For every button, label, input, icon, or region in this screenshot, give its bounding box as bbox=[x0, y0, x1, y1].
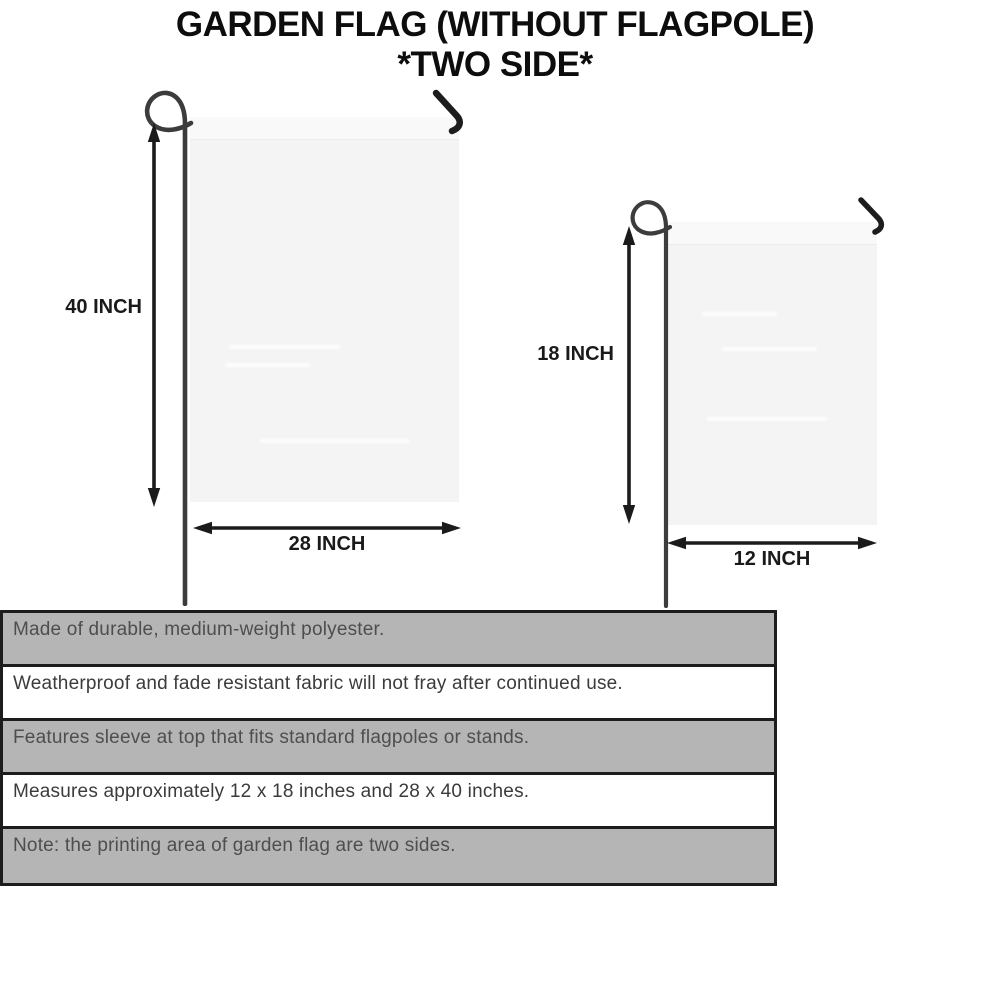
fabric-crease bbox=[707, 417, 827, 421]
feature-table: Made of durable, medium-weight polyester… bbox=[0, 610, 777, 886]
fabric-crease bbox=[230, 345, 340, 349]
feature-row: Weatherproof and fade resistant fabric w… bbox=[3, 667, 774, 721]
small-flag-width-label: 12 INCH bbox=[666, 548, 878, 571]
page-subtitle: *TWO SIDE* bbox=[0, 45, 990, 85]
page-title: GARDEN FLAG (WITHOUT FLAGPOLE) bbox=[0, 5, 990, 45]
small-flag-height-label: 18 INCH bbox=[524, 343, 614, 366]
large-flag-sleeve bbox=[190, 117, 459, 140]
large-flag-hook-icon bbox=[431, 89, 465, 135]
large-flag-width-label: 28 INCH bbox=[192, 533, 462, 556]
fabric-crease bbox=[722, 347, 817, 351]
feature-row: Features sleeve at top that fits standar… bbox=[3, 721, 774, 775]
feature-row: Measures approximately 12 x 18 inches an… bbox=[3, 775, 774, 829]
product-diagram-page: GARDEN FLAG (WITHOUT FLAGPOLE) *TWO SIDE… bbox=[0, 0, 1000, 1000]
fabric-crease bbox=[225, 363, 310, 367]
feature-row: Made of durable, medium-weight polyester… bbox=[3, 613, 774, 667]
feature-row: Note: the printing area of garden flag a… bbox=[3, 829, 774, 883]
small-flag-hook-icon bbox=[857, 196, 887, 236]
fabric-crease bbox=[702, 312, 777, 316]
large-flag-canvas bbox=[190, 117, 459, 502]
large-height-arrow-icon bbox=[144, 122, 164, 508]
small-height-arrow-icon bbox=[619, 225, 639, 525]
large-flag-height-label: 40 INCH bbox=[50, 296, 142, 319]
small-flag-sleeve bbox=[667, 222, 877, 245]
fabric-crease bbox=[260, 439, 410, 443]
small-flag-canvas bbox=[667, 222, 877, 525]
